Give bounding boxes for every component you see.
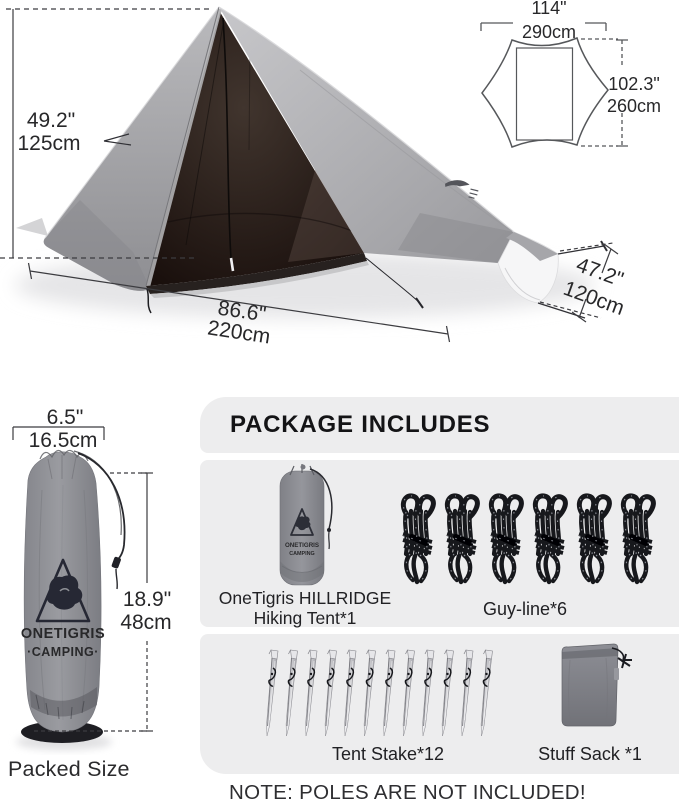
- tent-item-label-line1: OneTigris HILLRIDGE: [212, 589, 398, 609]
- stake-5: [345, 650, 356, 736]
- guyline-2: [447, 496, 477, 582]
- stake-10: [442, 650, 453, 736]
- packed-bag: ONETIGRIS ·CAMPING·: [21, 450, 125, 732]
- footprint-inner-rect: [517, 48, 573, 140]
- stake-4: [325, 650, 336, 736]
- stake-9: [423, 650, 434, 736]
- packed-width-inches-label: 6.5": [47, 406, 84, 429]
- stake-label: Tent Stake*12: [288, 744, 488, 764]
- footprint-outline: [482, 38, 608, 147]
- stake-11: [462, 650, 473, 736]
- footprint-depth-inches-label: 102.3": [608, 74, 659, 94]
- footprint-width-inches-label: 114": [531, 0, 566, 18]
- guyline-6: [623, 496, 653, 582]
- tent-figure: 49.2" 125cm 86.6" 220cm 47.2" 120cm: [0, 0, 679, 395]
- tent-illustration: [16, 7, 607, 318]
- stake-12: [481, 650, 492, 736]
- stake-2: [286, 650, 297, 736]
- stake-1: [267, 650, 278, 736]
- cord-toggle: [111, 556, 121, 569]
- stake-6: [364, 650, 375, 736]
- packed-width-cm-label: 16.5cm: [29, 429, 98, 452]
- guyline-4: [535, 496, 565, 582]
- stuff-sack-item: [552, 638, 632, 734]
- stuff-sack-label: Stuff Sack *1: [494, 744, 679, 764]
- package-title: PACKAGE INCLUDES: [230, 397, 490, 453]
- guyline-3: [491, 496, 521, 582]
- stake-3: [306, 650, 317, 736]
- guyline-label: Guy-line*6: [430, 599, 620, 619]
- tent-item-label: OneTigris HILLRIDGE Hiking Tent*1: [212, 589, 398, 628]
- tent-item-label-line2: Hiking Tent*1: [212, 609, 398, 629]
- footprint-diagram: 114" 290cm 102.3" 260cm: [481, 0, 661, 147]
- left-fly-tail: [16, 218, 48, 236]
- footprint-depth-cm-label: 260cm: [607, 96, 661, 116]
- bag-brand-text: ONETIGRIS: [21, 626, 105, 642]
- guyline-item: [396, 466, 660, 590]
- tent-bag-item: ONETIGRIS CAMPING: [272, 461, 344, 591]
- stake-item: [258, 648, 508, 746]
- packed-size-figure: ONETIGRIS ·CAMPING· 6.5" 16.5cm 18.9" 48…: [0, 395, 210, 807]
- height-cm-label: 125cm: [17, 132, 80, 155]
- product-infographic: 49.2" 125cm 86.6" 220cm 47.2" 120cm: [0, 0, 679, 807]
- small-bag-sub-text: CAMPING: [289, 551, 314, 557]
- footprint-width-cm-label: 290cm: [522, 22, 576, 42]
- height-inches-label: 49.2": [27, 109, 75, 132]
- small-bag-brand-text: ONETIGRIS: [285, 542, 319, 549]
- bag-sub-text: ·CAMPING·: [27, 645, 99, 659]
- poles-note: NOTE: POLES ARE NOT INCLUDED!: [229, 781, 586, 805]
- guyline-1: [403, 496, 433, 582]
- package-panel-header: PACKAGE INCLUDES: [200, 397, 679, 453]
- packed-height-cm-label: 48cm: [120, 611, 171, 634]
- packed-size-caption: Packed Size: [8, 757, 130, 782]
- stake-7: [384, 650, 395, 736]
- stake-8: [403, 650, 414, 736]
- guyline-5: [579, 496, 609, 582]
- packed-height-inches-label: 18.9": [123, 588, 171, 611]
- sack-cord-knot: [618, 654, 632, 668]
